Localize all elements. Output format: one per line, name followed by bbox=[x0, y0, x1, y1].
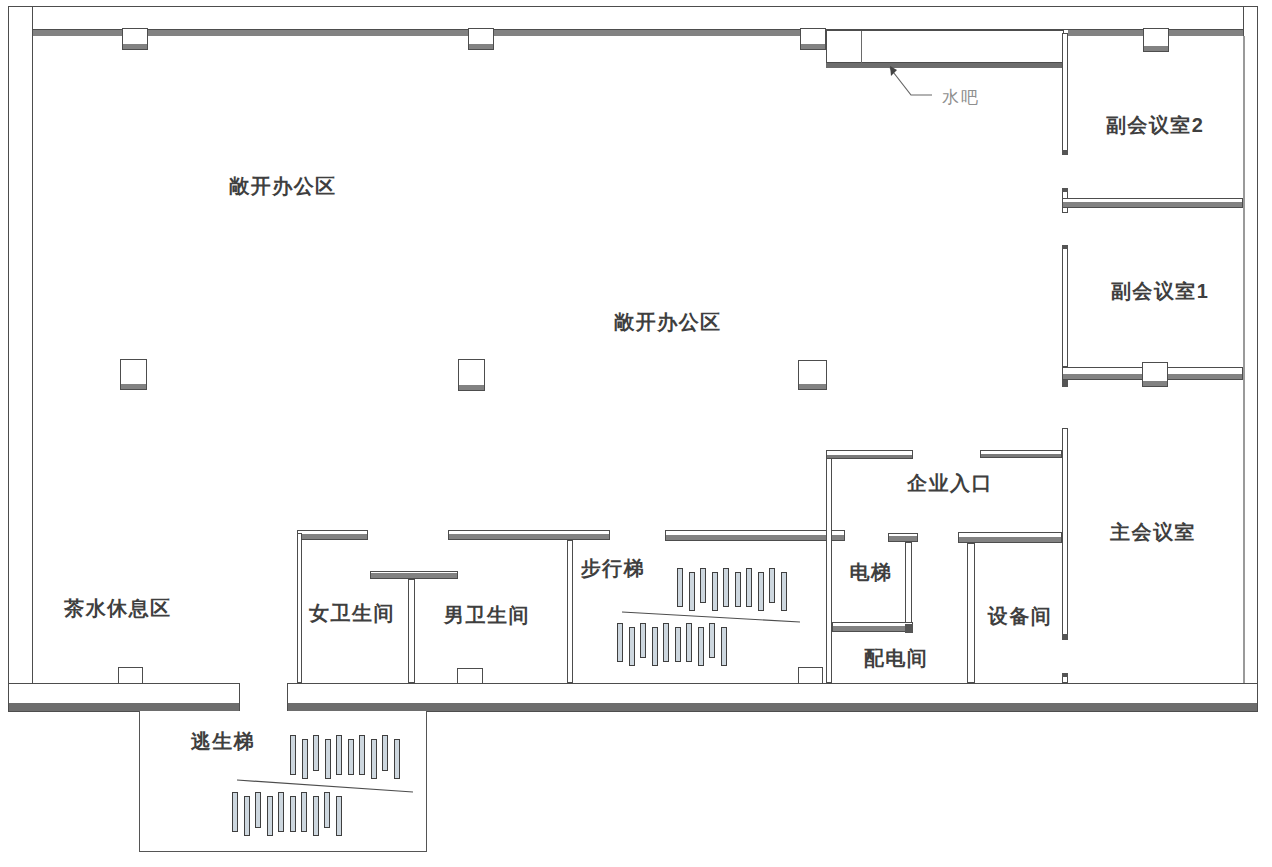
label-power-distribution-room: 配电间 bbox=[864, 648, 929, 668]
column bbox=[1143, 28, 1169, 52]
water-bar-counter-edge bbox=[826, 63, 1064, 68]
top-wall-inner-strip-left bbox=[33, 30, 800, 36]
wall-end-cap bbox=[1062, 245, 1068, 249]
mens-restroom-top-wall bbox=[448, 530, 610, 540]
outer-wall-right-inner-line bbox=[1243, 36, 1245, 711]
meeting-wing-wall-segment bbox=[1062, 245, 1068, 367]
column bbox=[468, 28, 494, 50]
wall-end-cap bbox=[1062, 188, 1068, 192]
restroom-partition-cap bbox=[370, 571, 458, 579]
womens-restroom-left-wall bbox=[297, 533, 302, 683]
label-equipment-room: 设备间 bbox=[988, 606, 1053, 626]
label-main-meeting-room: 主会议室 bbox=[1110, 522, 1196, 542]
equipment-room-left-wall bbox=[967, 543, 975, 683]
entrance-top-wall-right bbox=[980, 450, 1062, 458]
walking-stairs-divider-line bbox=[622, 612, 800, 622]
outer-wall-bottom-left-segment bbox=[8, 683, 240, 712]
label-sub-meeting-room-1: 副会议室1 bbox=[1111, 281, 1210, 301]
column bbox=[120, 359, 147, 390]
walking-stairs-lower-flight bbox=[617, 623, 727, 667]
column bbox=[1142, 362, 1168, 387]
water-bar-leader-line bbox=[890, 68, 932, 95]
outer-wall-right bbox=[1243, 6, 1258, 712]
outer-wall-bottom-right-segment bbox=[287, 683, 1258, 712]
bottom-wall-door-bump bbox=[798, 667, 823, 683]
label-open-office-2: 敞开办公区 bbox=[614, 312, 722, 332]
label-sub-meeting-room-2: 副会议室2 bbox=[1106, 115, 1205, 135]
elevator-top-wall-cap bbox=[888, 533, 918, 542]
label-enterprise-entrance: 企业入口 bbox=[907, 473, 993, 493]
label-womens-restroom: 女卫生间 bbox=[309, 603, 395, 623]
escape-stairs-lower-flight bbox=[232, 792, 342, 837]
column bbox=[798, 360, 827, 390]
label-elevator: 电梯 bbox=[850, 562, 893, 582]
escape-stairs-upper-flight bbox=[290, 735, 400, 780]
label-walking-stairs: 步行梯 bbox=[581, 558, 646, 578]
wall-end-cap bbox=[1062, 634, 1068, 640]
column bbox=[800, 28, 826, 50]
label-tea-lounge: 茶水休息区 bbox=[64, 598, 172, 618]
entrance-corridor-left-wall bbox=[826, 450, 832, 683]
entrance-top-wall-left bbox=[826, 450, 913, 459]
elevator-bottom-wall bbox=[832, 622, 913, 632]
stairwell-top-wall bbox=[665, 530, 845, 541]
water-bar-counter-divider bbox=[861, 31, 862, 63]
meeting-wing-wall-segment bbox=[1062, 428, 1068, 640]
wall-end-cap bbox=[1062, 673, 1068, 677]
elevator-bottom-wall-end-block bbox=[905, 624, 913, 633]
stairwell-left-wall bbox=[567, 540, 573, 683]
label-water-bar: 水吧 bbox=[942, 89, 980, 106]
column bbox=[122, 28, 148, 50]
wall-end-cap bbox=[1062, 150, 1068, 155]
wall-stub bbox=[1062, 380, 1068, 387]
elevator-right-wall bbox=[905, 542, 912, 625]
bottom-wall-door-bump bbox=[457, 668, 483, 683]
sub-meeting-rooms-divider-wall bbox=[1062, 198, 1243, 208]
floor-plan-canvas: [data-name="outer-wall-bottom-left-segme… bbox=[0, 0, 1272, 867]
column bbox=[458, 359, 485, 391]
label-mens-restroom: 男卫生间 bbox=[444, 605, 530, 625]
label-open-office-1: 敞开办公区 bbox=[229, 176, 337, 196]
label-escape-stairs: 逃生梯 bbox=[191, 731, 256, 751]
meeting-wing-wall-segment bbox=[1062, 33, 1068, 155]
equipment-room-top-wall bbox=[958, 532, 1062, 543]
restroom-partition-stem bbox=[408, 579, 415, 683]
outer-wall-left bbox=[8, 6, 33, 712]
walking-stairs-upper-flight bbox=[677, 568, 787, 612]
outer-wall-top bbox=[8, 6, 1258, 30]
bottom-wall-door-bump bbox=[118, 667, 143, 683]
womens-restroom-top-wall bbox=[297, 530, 368, 540]
